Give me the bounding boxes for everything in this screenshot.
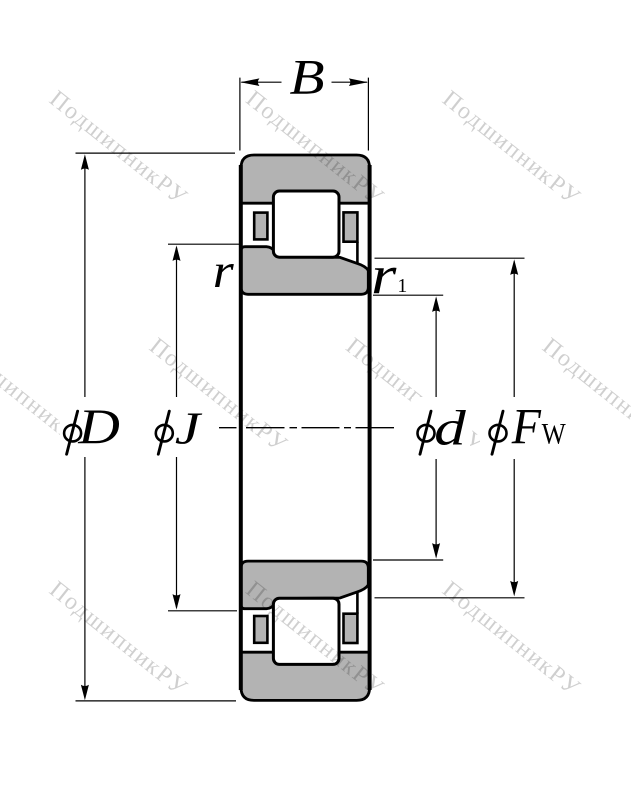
svg-text:J: J (175, 404, 203, 454)
svg-text:F: F (511, 398, 542, 455)
svg-text:r: r (371, 245, 397, 305)
svg-text:r: r (213, 245, 235, 299)
svg-text:W: W (542, 417, 566, 450)
svg-text:1: 1 (397, 275, 407, 297)
svg-text:d: d (434, 401, 466, 456)
svg-text:B: B (290, 49, 325, 104)
svg-text:D: D (77, 398, 120, 454)
